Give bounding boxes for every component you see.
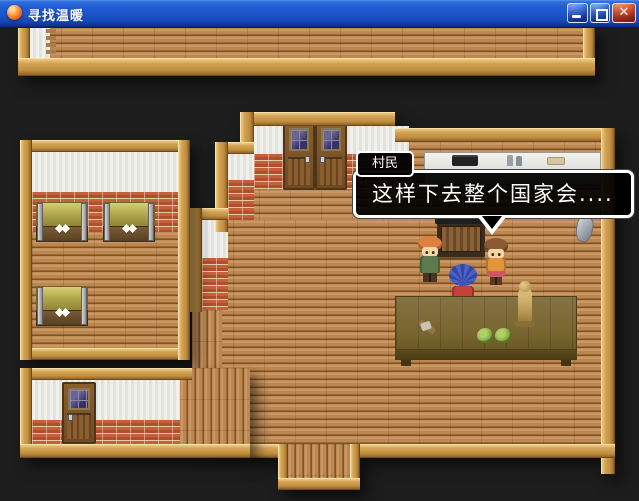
entry-door [62,382,96,444]
step-wall-2 [202,220,228,310]
wooden-statue [518,288,532,322]
cabbage [495,328,512,343]
chest [103,202,155,242]
frame-bottom [20,444,250,458]
frame-top [20,368,192,380]
close-button[interactable]: ✕ [612,3,636,23]
frame-right [583,28,595,58]
frame-bottom [18,58,595,76]
door-window [289,128,309,151]
dialogue-box: 这样下去整个国家会.... [353,170,634,218]
wall-white [32,380,180,420]
npc-villager-green [416,236,444,284]
npc-villager-orange [482,238,510,286]
door-handle [320,156,325,163]
game-screen[interactable]: 这样下去整个国家会.... 村民 [0,26,639,501]
table-front [395,350,577,360]
bottle [516,156,522,166]
door-window [68,388,90,410]
entry-room [20,368,250,458]
frame-bottom [20,348,190,360]
table-leg [561,360,571,366]
maximize-button[interactable] [590,3,610,23]
doorstep-frame [278,478,360,490]
door-handle [305,156,310,163]
bottle [507,155,513,166]
app-icon [7,5,22,20]
dialogue-continue-arrow-fill [482,216,502,229]
frame [188,208,202,312]
chest [36,202,88,242]
table-leg [401,360,411,366]
step-wall-1 [228,154,254,220]
frame [240,112,395,126]
frame-left [20,140,32,360]
double-door-right [315,122,347,190]
dialogue-name-tag: 村民 [356,151,414,177]
door-window [321,128,341,151]
window-title: 寻找温暖 [28,5,84,24]
frame-right [178,140,190,360]
stove [452,155,478,166]
wall-brick [32,420,180,444]
cabbage [477,328,494,343]
minimize-button[interactable] [567,3,588,23]
wall-white [32,152,178,192]
chest [36,286,88,326]
application-window: 这样下去整个国家会.... 村民 寻找温暖 ✕ [0,0,639,501]
double-door-left [283,122,315,190]
dialogue-text: 这样下去整个国家会.... [356,173,631,215]
title-bar[interactable]: 寻找温暖 ✕ [0,0,639,27]
minimize-icon [572,15,581,18]
frame-left [18,28,30,58]
close-icon: ✕ [613,4,635,22]
maximize-icon [596,9,608,21]
wood-floor [30,28,583,58]
plank-ends [46,29,56,57]
frame-top [20,140,190,152]
bedroom [20,140,190,360]
top-room [18,28,595,76]
speaker-name: 村民 [372,156,398,171]
tray [547,157,565,165]
door-handle [68,414,73,421]
doorstep-floor [288,444,350,478]
frame [395,128,601,142]
